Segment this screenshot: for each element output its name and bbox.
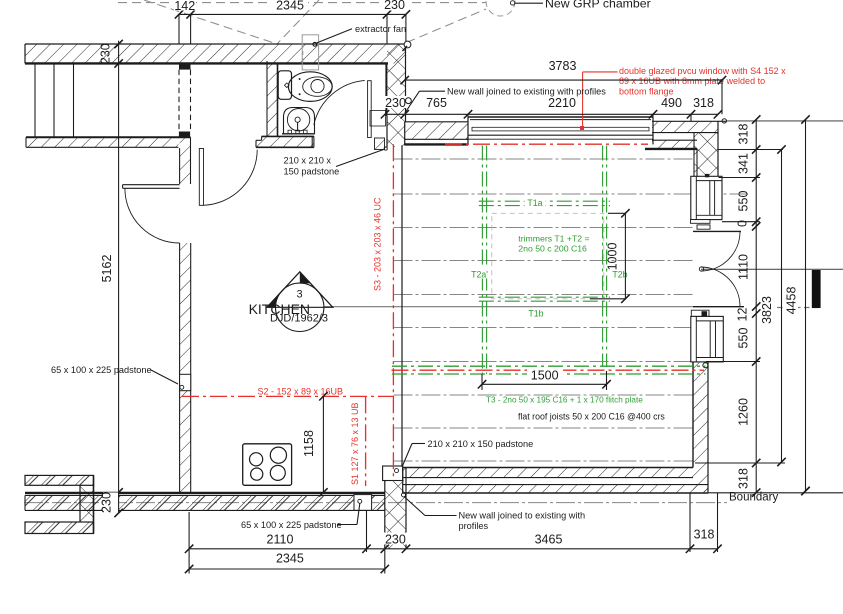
svg-text:1158: 1158 bbox=[302, 430, 316, 457]
svg-text:DJD/1962/3: DJD/1962/3 bbox=[270, 313, 328, 325]
svg-text:T2a': T2a' bbox=[471, 269, 488, 279]
svg-text:230: 230 bbox=[100, 492, 114, 513]
svg-text:2345: 2345 bbox=[276, 552, 304, 566]
svg-text:12: 12 bbox=[736, 308, 750, 322]
svg-text:1260: 1260 bbox=[737, 398, 751, 426]
svg-text:550: 550 bbox=[737, 191, 751, 212]
svg-text:550: 550 bbox=[737, 328, 751, 349]
svg-text:2345: 2345 bbox=[276, 0, 304, 13]
svg-text:extractor fan: extractor fan bbox=[355, 24, 406, 34]
svg-text:3: 3 bbox=[296, 289, 302, 301]
svg-text:765: 765 bbox=[426, 96, 447, 110]
svg-text:318: 318 bbox=[694, 527, 715, 541]
svg-text:230: 230 bbox=[385, 532, 406, 546]
svg-text:2210: 2210 bbox=[548, 96, 576, 110]
svg-text:230: 230 bbox=[99, 43, 113, 64]
svg-text:341: 341 bbox=[737, 153, 751, 174]
svg-text:trimmers T1 +T2 =: trimmers T1 +T2 = bbox=[518, 233, 589, 243]
svg-text:S1 127 x 76 x 13 UB: S1 127 x 76 x 13 UB bbox=[350, 402, 360, 485]
svg-text:bottom flange: bottom flange bbox=[619, 86, 674, 96]
svg-text:3783: 3783 bbox=[549, 59, 577, 73]
svg-text:65 x 100 x 225 padstone: 65 x 100 x 225 padstone bbox=[241, 520, 342, 530]
svg-text:1000: 1000 bbox=[606, 243, 620, 271]
svg-text:318: 318 bbox=[737, 124, 751, 145]
svg-text:New wall joined to existing wi: New wall joined to existing with profile… bbox=[447, 86, 606, 96]
svg-text:230: 230 bbox=[385, 96, 406, 110]
svg-text:New wall joined to existing wi: New wall joined to existing with bbox=[459, 511, 586, 521]
svg-text:490: 490 bbox=[661, 96, 682, 110]
svg-text:double glazed pvcu window with: double glazed pvcu window with S4 152 x bbox=[619, 66, 786, 76]
svg-text:230: 230 bbox=[384, 0, 405, 12]
svg-text:5162: 5162 bbox=[100, 255, 114, 283]
svg-text:142: 142 bbox=[174, 0, 195, 13]
svg-text:318: 318 bbox=[737, 468, 751, 489]
svg-text:S3 - 203 x 203 x 46 UC: S3 - 203 x 203 x 46 UC bbox=[372, 197, 382, 291]
svg-text:318: 318 bbox=[693, 96, 714, 110]
svg-text:89 x 16UB with 8mm plate welde: 89 x 16UB with 8mm plate welded to bbox=[619, 76, 765, 86]
svg-text:New GRP chamber: New GRP chamber bbox=[545, 0, 651, 10]
svg-text:T3 - 2no 50 x 195 C16 + 1 x 17: T3 - 2no 50 x 195 C16 + 1 x 170 flitch p… bbox=[486, 395, 643, 404]
svg-text:T1a: T1a bbox=[527, 198, 542, 208]
svg-text:2no 50 c 200 C16: 2no 50 c 200 C16 bbox=[518, 244, 587, 254]
svg-text:Boundary: Boundary bbox=[729, 492, 778, 504]
svg-text:0: 0 bbox=[736, 220, 750, 227]
svg-text:2110: 2110 bbox=[267, 532, 294, 546]
svg-text:S2 - 152 x 89 x 16UB: S2 - 152 x 89 x 16UB bbox=[258, 387, 344, 397]
svg-text:4458: 4458 bbox=[785, 287, 799, 315]
svg-text:1110: 1110 bbox=[737, 254, 751, 280]
svg-text:210 x 210 x: 210 x 210 x bbox=[284, 156, 332, 166]
svg-text:65 x 100 x 225 padstone: 65 x 100 x 225 padstone bbox=[51, 365, 152, 375]
svg-text:1500: 1500 bbox=[531, 368, 559, 382]
svg-text:flat roof joists 50 x 200 C16: flat roof joists 50 x 200 C16 @400 crs bbox=[518, 412, 665, 422]
svg-text:210 x 210 x 150 padstone: 210 x 210 x 150 padstone bbox=[428, 439, 534, 449]
svg-text:150 padstone: 150 padstone bbox=[284, 167, 340, 177]
svg-text:T1b: T1b bbox=[528, 309, 543, 319]
svg-text:3823: 3823 bbox=[760, 296, 774, 324]
svg-text:profiles: profiles bbox=[459, 521, 489, 531]
svg-text:3465: 3465 bbox=[535, 532, 563, 546]
